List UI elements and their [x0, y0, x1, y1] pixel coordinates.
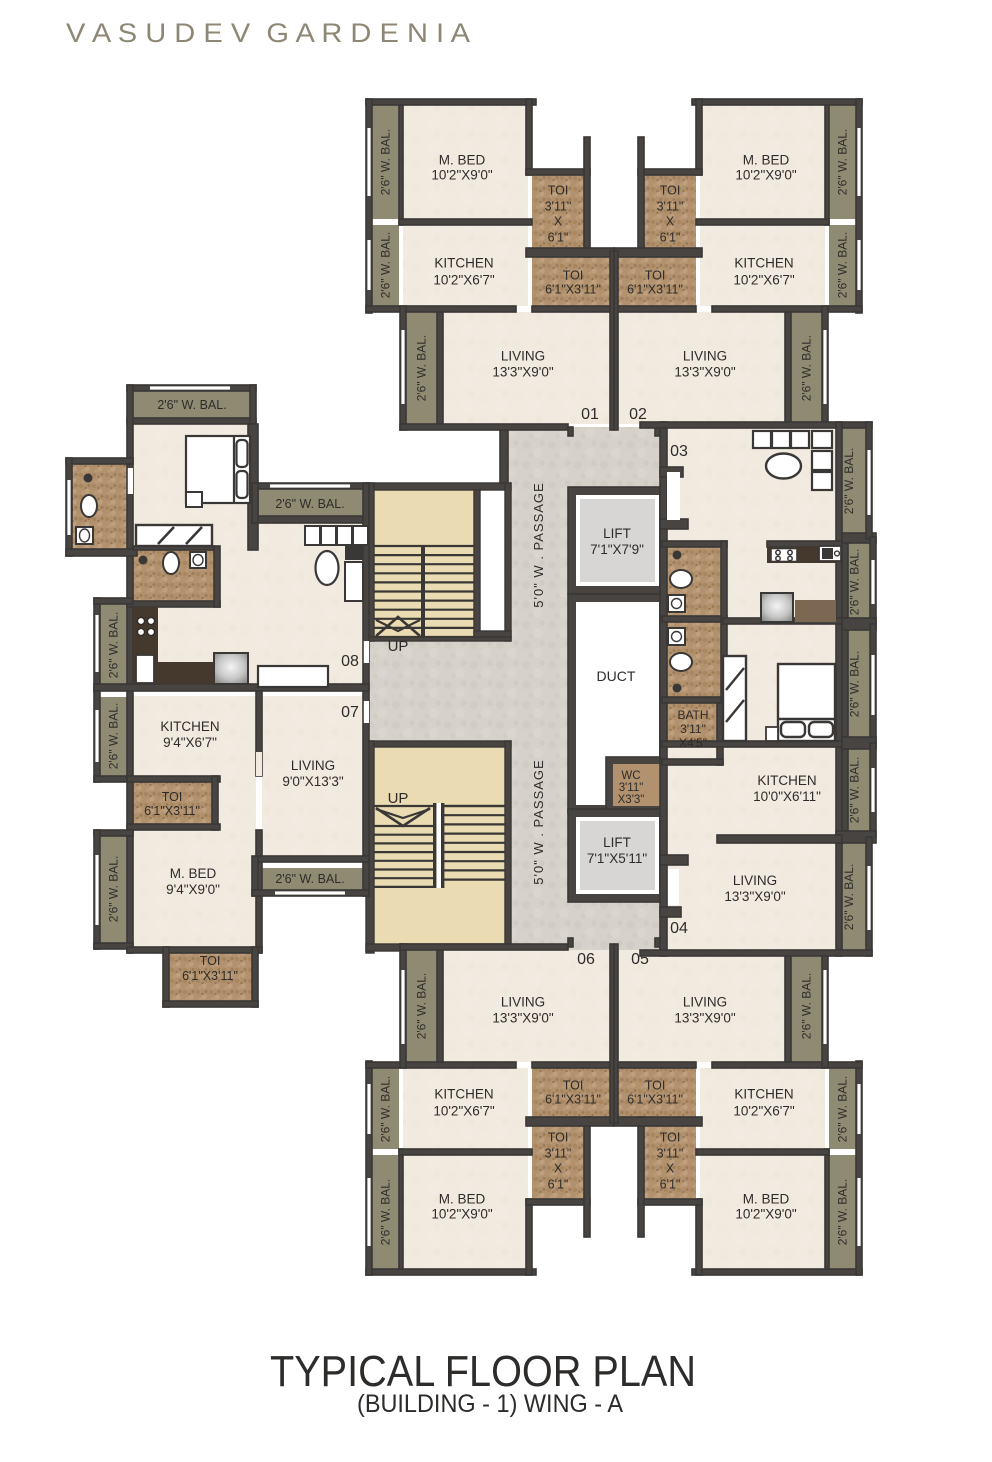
- svg-text:TOI: TOI: [645, 269, 666, 283]
- svg-text:KITCHEN: KITCHEN: [757, 773, 816, 788]
- svg-text:08: 08: [341, 653, 359, 670]
- svg-text:3'11": 3'11": [657, 1147, 684, 1161]
- svg-text:LIVING: LIVING: [733, 873, 777, 888]
- svg-text:TOI: TOI: [645, 1079, 666, 1093]
- svg-text:LIVING: LIVING: [501, 995, 545, 1010]
- svg-text:9'4"X9'0": 9'4"X9'0": [166, 882, 220, 897]
- svg-text:2'6" W. BAL.: 2'6" W. BAL.: [848, 651, 862, 718]
- svg-text:LIFT: LIFT: [603, 526, 631, 541]
- svg-text:6'1"X3'11": 6'1"X3'11": [182, 969, 238, 983]
- svg-text:2'6" W. BAL.: 2'6" W. BAL.: [848, 757, 862, 824]
- svg-text:2'6" W. BAL.: 2'6" W. BAL.: [107, 856, 121, 923]
- svg-text:13'3"X9'0": 13'3"X9'0": [724, 889, 785, 904]
- svg-text:2'6" W. BAL.: 2'6" W. BAL.: [157, 398, 226, 412]
- svg-text:2'6" W. BAL.: 2'6" W. BAL.: [415, 973, 429, 1040]
- svg-text:10'2"X6'7": 10'2"X6'7": [433, 1104, 494, 1119]
- svg-text:9'0"X13'3": 9'0"X13'3": [282, 774, 343, 789]
- svg-text:KITCHEN: KITCHEN: [434, 1087, 493, 1102]
- svg-text:X: X: [554, 215, 563, 229]
- svg-text:10'2"X6'7": 10'2"X6'7": [733, 273, 794, 288]
- svg-text:2'6" W. BAL.: 2'6" W. BAL.: [848, 549, 862, 616]
- svg-text:6'1"X3'11": 6'1"X3'11": [627, 1093, 683, 1107]
- svg-text:3'11": 3'11": [680, 722, 706, 736]
- svg-text:LIFT: LIFT: [603, 835, 631, 850]
- svg-text:2'6" W. BAL.: 2'6" W. BAL.: [379, 232, 393, 299]
- svg-text:2'6" W. BAL.: 2'6" W. BAL.: [842, 864, 856, 931]
- svg-text:2'6" W. BAL.: 2'6" W. BAL.: [836, 129, 850, 196]
- svg-text:03: 03: [670, 443, 688, 460]
- svg-text:2'6" W. BAL.: 2'6" W. BAL.: [842, 448, 856, 515]
- svg-text:KITCHEN: KITCHEN: [160, 719, 219, 734]
- svg-text:2'6" W. BAL.: 2'6" W. BAL.: [275, 872, 344, 886]
- svg-text:9'4"X6'7": 9'4"X6'7": [163, 735, 217, 750]
- svg-text:TYPICAL FLOOR PLAN: TYPICAL FLOOR PLAN: [270, 1347, 696, 1396]
- svg-text:13'3"X9'0": 13'3"X9'0": [492, 1011, 553, 1026]
- svg-text:2'6" W. BAL.: 2'6" W. BAL.: [836, 232, 850, 299]
- svg-text:UP: UP: [388, 638, 409, 655]
- svg-text:X4'5": X4'5": [679, 736, 707, 750]
- svg-text:5'0" W . PASSAGE: 5'0" W . PASSAGE: [531, 759, 546, 884]
- svg-text:6'1"X3'11": 6'1"X3'11": [627, 283, 683, 297]
- svg-text:3'11": 3'11": [545, 1147, 572, 1161]
- svg-text:2'6" W. BAL.: 2'6" W. BAL.: [800, 973, 814, 1040]
- svg-text:LIVING: LIVING: [501, 349, 545, 364]
- svg-text:06: 06: [577, 951, 595, 968]
- svg-text:6'1"X3'11": 6'1"X3'11": [545, 1093, 601, 1107]
- svg-text:2'6" W. BAL.: 2'6" W. BAL.: [107, 703, 121, 770]
- svg-text:5'0" W . PASSAGE: 5'0" W . PASSAGE: [531, 482, 546, 607]
- svg-text:10'2"X6'7": 10'2"X6'7": [433, 273, 494, 288]
- svg-text:07: 07: [341, 704, 359, 721]
- svg-text:TOI: TOI: [563, 269, 584, 283]
- svg-text:M. BED: M. BED: [439, 153, 486, 168]
- svg-text:10'2"X9'0": 10'2"X9'0": [431, 1207, 492, 1222]
- svg-text:LIVING: LIVING: [291, 758, 335, 773]
- svg-text:2'6" W. BAL.: 2'6" W. BAL.: [415, 335, 429, 402]
- svg-text:2'6" W. BAL.: 2'6" W. BAL.: [379, 1076, 393, 1143]
- svg-text:2'6" W. BAL.: 2'6" W. BAL.: [107, 612, 121, 679]
- svg-text:10'2"X6'7": 10'2"X6'7": [733, 1104, 794, 1119]
- svg-text:02: 02: [629, 406, 647, 423]
- svg-text:X3'3": X3'3": [618, 794, 645, 806]
- svg-text:7'1"X7'9": 7'1"X7'9": [590, 542, 644, 557]
- svg-text:M. BED: M. BED: [439, 1192, 486, 1207]
- svg-text:TOI: TOI: [162, 790, 183, 804]
- svg-text:LIVING: LIVING: [683, 995, 727, 1010]
- svg-text:UP: UP: [388, 790, 409, 807]
- svg-text:13'3"X9'0": 13'3"X9'0": [674, 1011, 735, 1026]
- svg-text:X: X: [666, 215, 675, 229]
- svg-text:M. BED: M. BED: [743, 1192, 790, 1207]
- svg-text:2'6" W. BAL.: 2'6" W. BAL.: [379, 1179, 393, 1246]
- svg-text:3'11": 3'11": [657, 200, 684, 214]
- svg-text:LIVING: LIVING: [683, 349, 727, 364]
- svg-text:10'0"X6'11": 10'0"X6'11": [753, 789, 821, 804]
- svg-text:TOI: TOI: [660, 1131, 681, 1145]
- svg-text:BATH: BATH: [677, 708, 708, 722]
- svg-text:3'11": 3'11": [545, 200, 572, 214]
- svg-text:WC: WC: [621, 770, 640, 782]
- svg-text:6'1": 6'1": [660, 1178, 681, 1192]
- svg-text:(BUILDING - 1) WING - A: (BUILDING - 1) WING - A: [357, 1390, 623, 1418]
- svg-text:TOI: TOI: [200, 954, 221, 968]
- svg-text:6'1": 6'1": [548, 1178, 569, 1192]
- svg-text:10'2"X9'0": 10'2"X9'0": [735, 1207, 796, 1222]
- svg-text:TOI: TOI: [660, 184, 681, 198]
- svg-text:3'11": 3'11": [619, 782, 644, 794]
- svg-text:M. BED: M. BED: [743, 153, 790, 168]
- svg-text:13'3"X9'0": 13'3"X9'0": [674, 365, 735, 380]
- svg-text:TOI: TOI: [548, 184, 569, 198]
- svg-text:M. BED: M. BED: [170, 866, 217, 881]
- svg-text:2'6" W. BAL.: 2'6" W. BAL.: [836, 1179, 850, 1246]
- svg-text:2'6" W. BAL.: 2'6" W. BAL.: [275, 497, 344, 511]
- svg-text:6'1"X3'11": 6'1"X3'11": [545, 283, 601, 297]
- svg-text:KITCHEN: KITCHEN: [734, 1087, 793, 1102]
- svg-text:TOI: TOI: [548, 1131, 569, 1145]
- svg-text:10'2"X9'0": 10'2"X9'0": [735, 168, 796, 183]
- svg-text:TOI: TOI: [563, 1079, 584, 1093]
- svg-text:KITCHEN: KITCHEN: [434, 256, 493, 271]
- svg-text:V A S U D E V G A R D E N I A: V A S U D E V G A R D E N I A: [66, 18, 470, 48]
- svg-text:6'1": 6'1": [660, 231, 681, 245]
- svg-text:2'6" W. BAL.: 2'6" W. BAL.: [800, 335, 814, 402]
- svg-text:DUCT: DUCT: [597, 668, 636, 684]
- svg-text:01: 01: [581, 406, 599, 423]
- svg-text:7'1"X5'11": 7'1"X5'11": [587, 851, 647, 866]
- svg-text:04: 04: [670, 920, 688, 937]
- svg-text:6'1"X3'11": 6'1"X3'11": [144, 804, 200, 818]
- svg-text:X: X: [554, 1162, 563, 1176]
- svg-text:10'2"X9'0": 10'2"X9'0": [431, 168, 492, 183]
- svg-text:2'6" W. BAL.: 2'6" W. BAL.: [379, 129, 393, 196]
- svg-text:13'3"X9'0": 13'3"X9'0": [492, 365, 553, 380]
- svg-text:KITCHEN: KITCHEN: [734, 256, 793, 271]
- svg-text:X: X: [666, 1162, 675, 1176]
- svg-text:6'1": 6'1": [548, 231, 569, 245]
- svg-text:2'6" W. BAL.: 2'6" W. BAL.: [836, 1076, 850, 1143]
